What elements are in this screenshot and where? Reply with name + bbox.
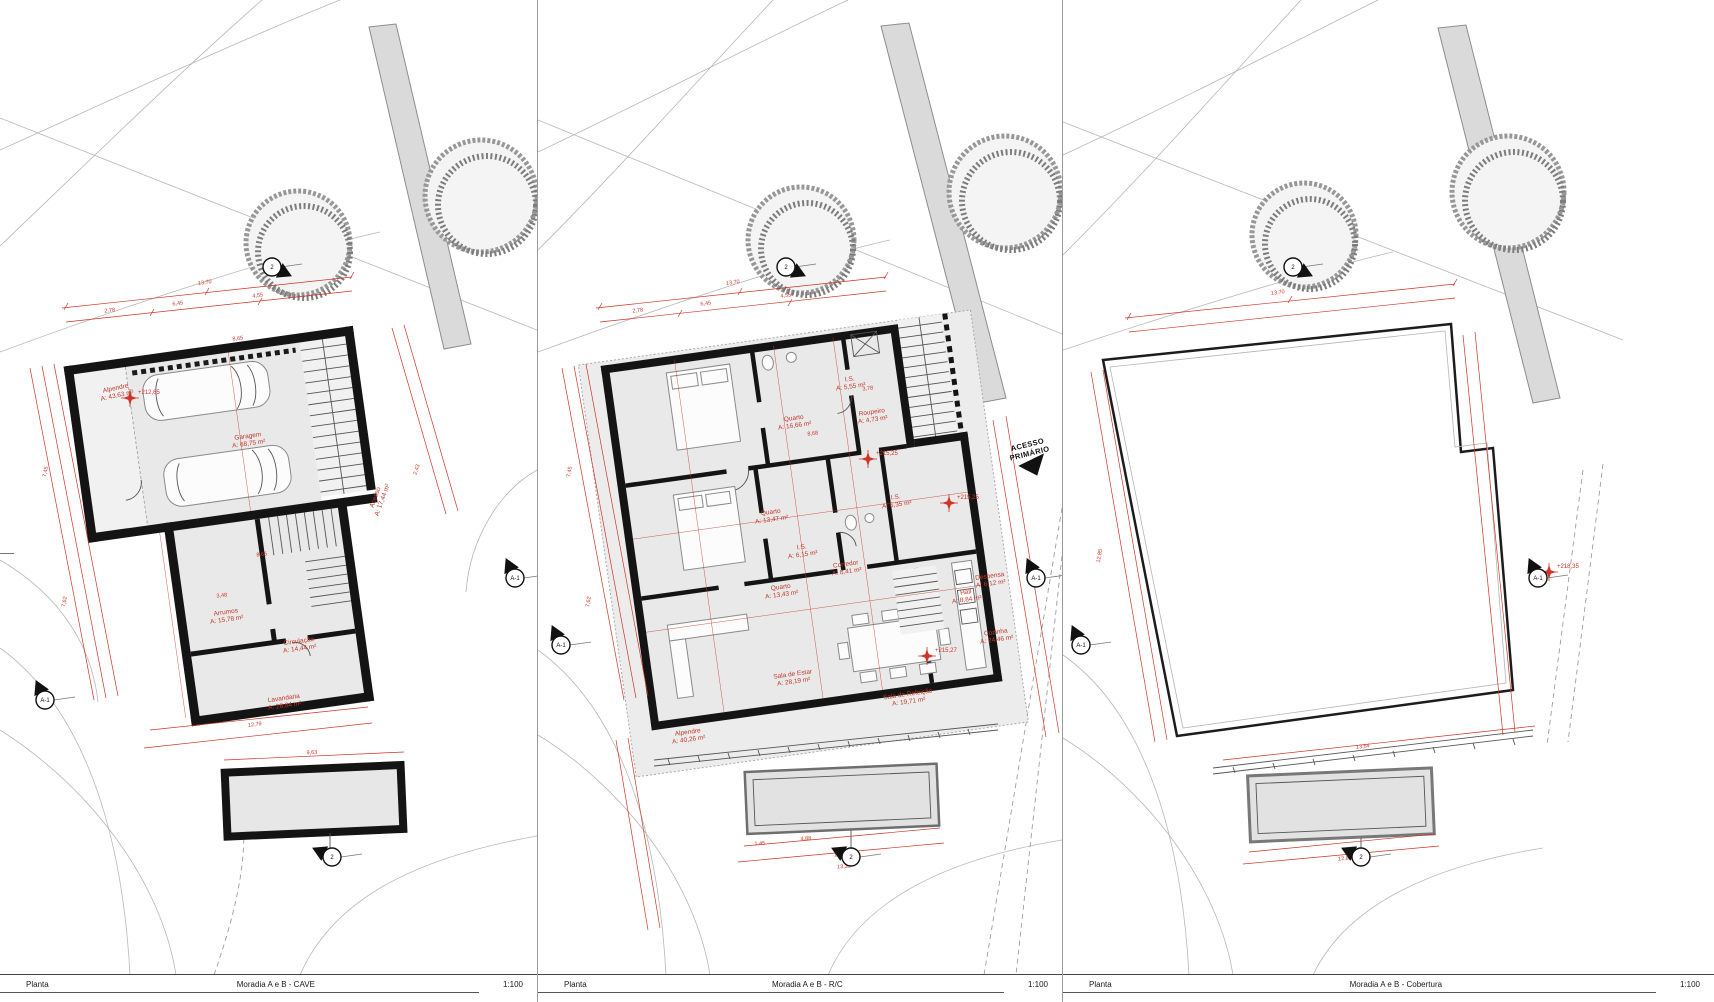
dimension-label: 7,62 xyxy=(61,596,69,608)
svg-text:A-1: A-1 xyxy=(1076,643,1086,649)
dimension-label: 8,65 xyxy=(256,551,267,558)
room-label: ArrumosA: 15,78 m² xyxy=(209,607,245,626)
dimension-label: 13,70 xyxy=(1271,289,1285,297)
cobertura-annotations: 13,7012,8513,6412,85+218,35A-122A-1 xyxy=(1063,0,1714,975)
dimension-label: 12,79 xyxy=(248,721,262,729)
dimension-label: 4,88 xyxy=(800,836,811,843)
svg-text:GaragemA: 68,75 m²: GaragemA: 68,75 m² xyxy=(231,431,267,450)
sheet-scale: 1:100 xyxy=(1028,980,1048,989)
svg-text:I.S.A: 6,15 m²: I.S.A: 6,15 m² xyxy=(786,542,819,561)
sheet-title: Moradia A e B - CAVE xyxy=(237,980,315,989)
sheet-type-label: Planta xyxy=(26,980,49,989)
svg-text:A-1: A-1 xyxy=(556,643,566,649)
sheet-title: Moradia A e B - Cobertura xyxy=(1350,980,1443,989)
room-label: I.S.A: 6,15 m² xyxy=(786,542,819,561)
dimension-label: 12,85 xyxy=(1096,549,1104,564)
dimension-label: 3,48 xyxy=(216,592,227,599)
dimension-label: 6,45 xyxy=(700,300,711,307)
sheet-type-label: Planta xyxy=(1089,980,1112,989)
svg-text:RoupeiroA: 4,73 m²: RoupeiroA: 4,73 m² xyxy=(856,407,889,426)
room-label: I.S.A: 6,35 m² xyxy=(880,492,913,511)
room-label: CorredorA: 8,41 m² xyxy=(830,559,863,578)
svg-text:HallA: 8,84 m²: HallA: 8,84 m² xyxy=(950,587,983,606)
svg-text:+215,25: +215,25 xyxy=(876,451,899,457)
dimension-label: 4,55 xyxy=(252,292,263,299)
plan-pane-cave: AlpendreA: 43,63 m²GaragemA: 68,75 m²Ace… xyxy=(0,0,537,1002)
room-label: DespensaA: 6,12 m² xyxy=(974,571,1007,590)
section-marker: 2 xyxy=(777,258,816,284)
dimension-label: 8,68 xyxy=(807,430,818,437)
room-label: QuartoA: 16,66 m² xyxy=(777,413,813,432)
svg-text:QuartoA: 13,43 m²: QuartoA: 13,43 m² xyxy=(764,582,800,601)
svg-text:AlpendreA: 40,26 m²: AlpendreA: 40,26 m² xyxy=(671,727,707,746)
dimension-label: 7,45 xyxy=(566,466,574,478)
primary-access-annotation: ACESSOPRIMÁRIO xyxy=(1007,435,1055,481)
room-label: QuartoA: 13,47 m² xyxy=(754,507,790,526)
room-label: AcessoA: 17,44 m² xyxy=(367,480,392,517)
dimension-label: 9,63 xyxy=(306,750,317,757)
edge-tick xyxy=(0,553,14,554)
cave-annotations: AlpendreA: 43,63 m²GaragemA: 68,75 m²Ace… xyxy=(0,0,537,975)
svg-text:AcessoA: 17,44 m²: AcessoA: 17,44 m² xyxy=(367,480,392,517)
section-marker: 2 xyxy=(309,840,362,866)
rc-annotations: QuartoA: 16,66 m²I.S.A: 5,55 m²RoupeiroA… xyxy=(538,0,1062,975)
sheet-title: Moradia A e B - R/C xyxy=(772,980,843,989)
room-label: HallA: 8,84 m² xyxy=(950,587,983,606)
svg-text:A-1: A-1 xyxy=(40,698,50,704)
svg-text:+218,35: +218,35 xyxy=(1557,564,1580,570)
dimension-label: 3,78 xyxy=(862,385,873,392)
dimension-label: 2,78 xyxy=(104,307,115,314)
svg-text:LavandariaA: 28,84 m²: LavandariaA: 28,84 m² xyxy=(267,693,303,712)
room-label: LavandariaA: 28,84 m² xyxy=(267,693,303,712)
title-block-cobertura: Planta Moradia A e B - Cobertura 1:100 xyxy=(1063,974,1714,1002)
dimension-label: 7,45 xyxy=(42,466,50,478)
section-marker: A-1 xyxy=(498,555,537,587)
title-block-rc: Planta Moradia A e B - R/C 1:100 xyxy=(538,974,1062,1002)
svg-text:+215,25: +215,25 xyxy=(957,495,980,501)
pane-divider xyxy=(537,0,538,1002)
dimension-label: 1,45 xyxy=(754,841,765,848)
section-marker: A-1 xyxy=(544,622,591,654)
svg-text:A-1: A-1 xyxy=(1533,576,1543,582)
dimension-label: 13,70 xyxy=(198,279,212,287)
pane-divider xyxy=(1062,0,1063,1002)
svg-text:A-1: A-1 xyxy=(510,576,520,582)
room-label: QuartoA: 13,43 m² xyxy=(764,582,800,601)
plan-pane-cobertura: 13,7012,8513,6412,85+218,35A-122A-1 Plan… xyxy=(1063,0,1714,1002)
section-marker: 2 xyxy=(263,258,302,284)
section-marker: A-1 xyxy=(1521,555,1568,587)
room-label: CirculaçãoA: 14,44 m² xyxy=(282,636,318,655)
sheet-scale: 1:100 xyxy=(1680,980,1700,989)
dimension-label: 4,55 xyxy=(780,292,791,299)
svg-text:A-1: A-1 xyxy=(1031,576,1041,582)
room-label: AlpendreA: 40,26 m² xyxy=(671,727,707,746)
room-label: RoupeiroA: 4,73 m² xyxy=(856,407,889,426)
sheet-scale: 1:100 xyxy=(503,980,523,989)
room-label: GaragemA: 68,75 m² xyxy=(231,431,267,450)
svg-text:ArrumosA: 15,78 m²: ArrumosA: 15,78 m² xyxy=(209,607,245,626)
title-block-cave: Planta Moradia A e B - CAVE 1:100 xyxy=(0,974,537,1002)
svg-text:I.S.A: 6,35 m²: I.S.A: 6,35 m² xyxy=(880,492,913,511)
room-label: Sala de RefeiçãoA: 19,71 m² xyxy=(883,688,934,709)
svg-text:CirculaçãoA: 14,44 m²: CirculaçãoA: 14,44 m² xyxy=(282,636,318,655)
svg-text:+212,65: +212,65 xyxy=(138,390,161,396)
dimension-label: 2,43 xyxy=(413,464,422,476)
plan-pane-rc: QuartoA: 16,66 m²I.S.A: 5,55 m²RoupeiroA… xyxy=(538,0,1062,1002)
level-marker: +215,25 xyxy=(859,450,899,468)
section-marker: A-1 xyxy=(1019,555,1062,587)
svg-text:QuartoA: 16,66 m²: QuartoA: 16,66 m² xyxy=(777,413,813,432)
section-marker: 2 xyxy=(828,840,881,866)
dimension-label: 7,62 xyxy=(585,596,593,608)
sheet-type-label: Planta xyxy=(564,980,587,989)
svg-text:CorredorA: 8,41 m²: CorredorA: 8,41 m² xyxy=(830,559,863,578)
svg-text:+215,27: +215,27 xyxy=(935,648,958,654)
dimension-label: 13,70 xyxy=(726,279,740,287)
room-label: Sala de EstarA: 28,19 m² xyxy=(773,668,814,688)
room-label: CozinhaA: 24,46 m² xyxy=(979,627,1015,646)
svg-text:QuartoA: 13,47 m²: QuartoA: 13,47 m² xyxy=(754,507,790,526)
dimension-label: 13,64 xyxy=(1356,743,1370,751)
svg-text:DespensaA: 6,12 m²: DespensaA: 6,12 m² xyxy=(974,571,1007,590)
svg-text:Sala de RefeiçãoA: 19,71 m²: Sala de RefeiçãoA: 19,71 m² xyxy=(883,688,934,709)
level-marker: +215,25 xyxy=(940,494,980,512)
section-marker: A-1 xyxy=(1064,622,1111,654)
section-marker: 2 xyxy=(1284,258,1323,284)
dimension-label: 2,78 xyxy=(632,307,643,314)
level-marker: +215,27 xyxy=(918,647,958,665)
dimension-label: 6,45 xyxy=(172,300,183,307)
dimension-label: 8,65 xyxy=(232,335,243,342)
svg-text:Sala de EstarA: 28,19 m²: Sala de EstarA: 28,19 m² xyxy=(773,668,814,688)
section-marker: A-1 xyxy=(28,677,75,709)
drawing-sheet: AlpendreA: 43,63 m²GaragemA: 68,75 m²Ace… xyxy=(0,0,1714,1002)
svg-text:CozinhaA: 24,46 m²: CozinhaA: 24,46 m² xyxy=(979,627,1015,646)
section-marker: 2 xyxy=(1338,840,1391,866)
